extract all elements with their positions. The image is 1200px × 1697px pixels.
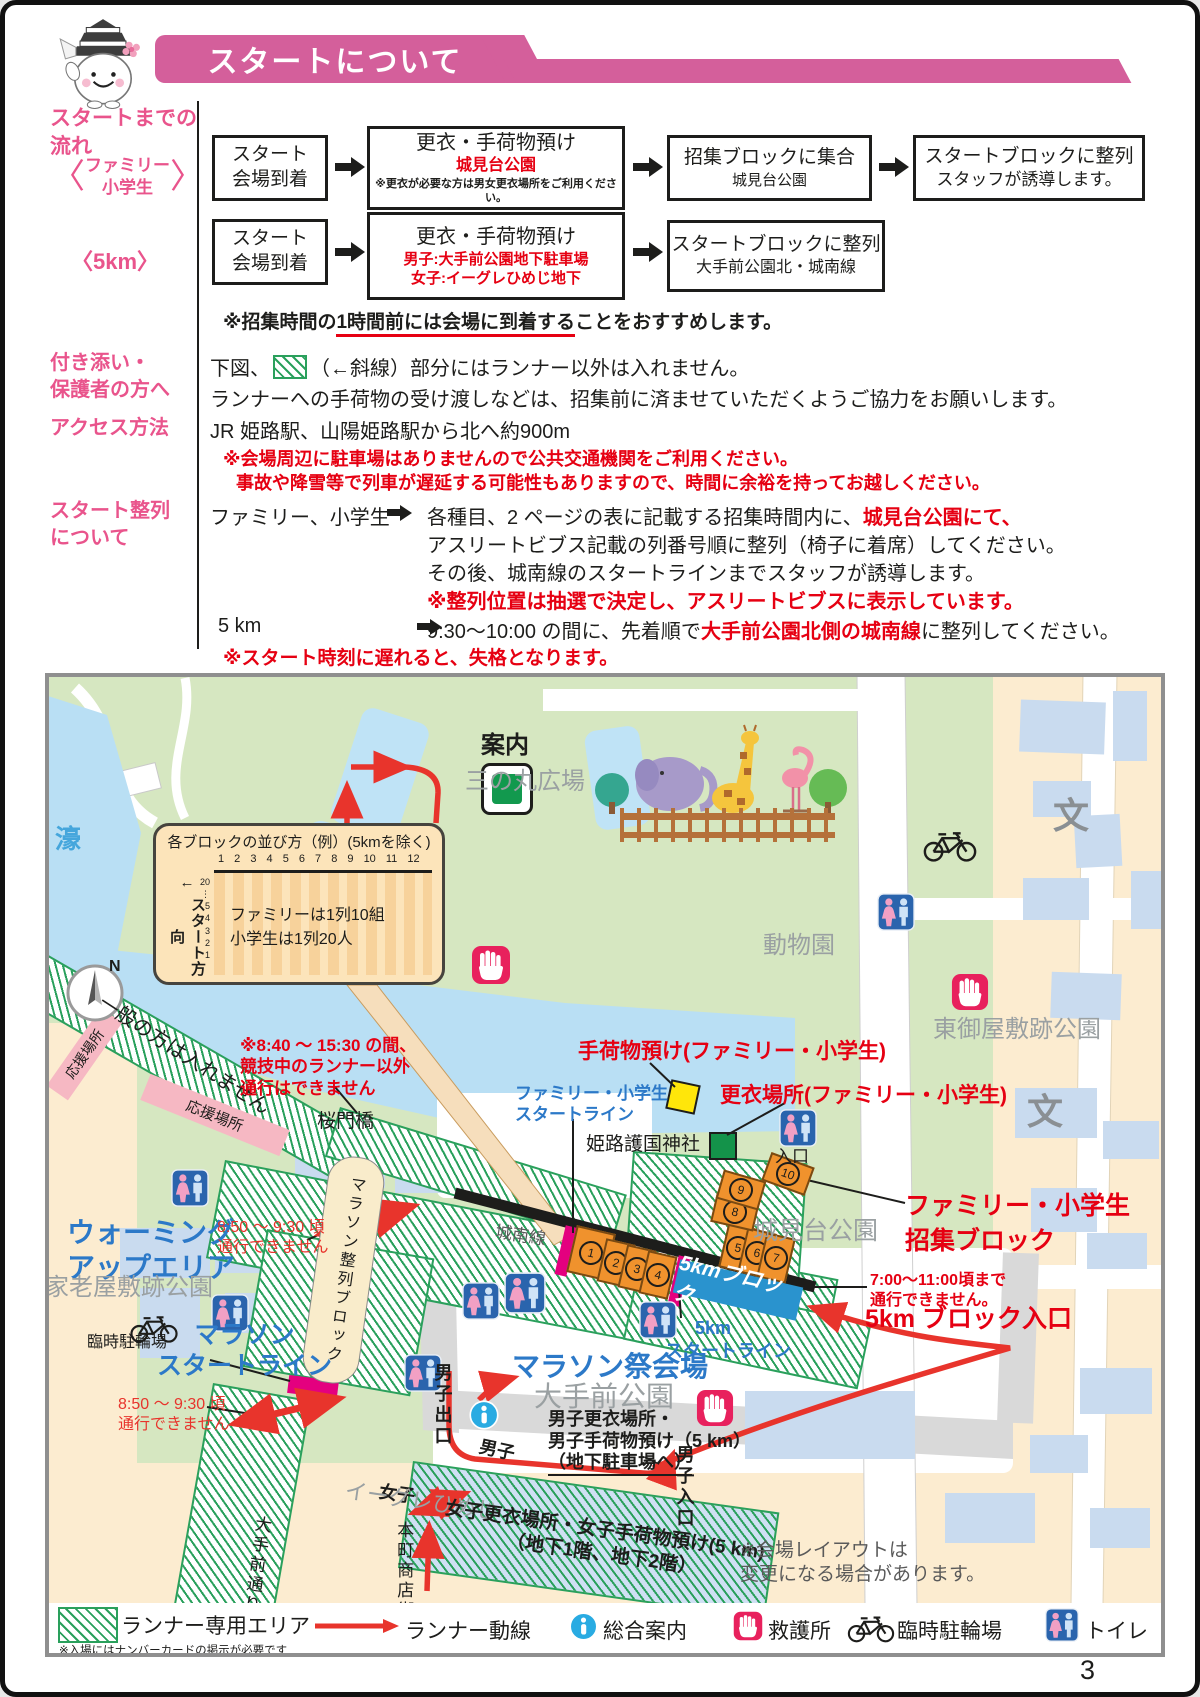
- section-label-attend: 付き添い・保護者の方へ: [50, 350, 170, 404]
- flow1-baggage-box: 更衣・手荷物預け 城見台公園 ※更衣が必要な方は男女更衣場所をご利用ください。: [367, 126, 625, 210]
- event-guide-page: スタートについて スタートまでの流れ 〈 ファミリー 小学生 〉 〈5km〉 付…: [0, 0, 1200, 1697]
- legend-hatch-swatch: [58, 1607, 118, 1643]
- north-label: N: [109, 957, 121, 977]
- assembly-block-label: ファミリー・小学生招集ブロック: [905, 1189, 1130, 1259]
- shiromidai-park-label: 城見台公園: [753, 1216, 878, 1247]
- higashi-park-label: 東御屋敷跡公園: [933, 1015, 1101, 1045]
- flow1-assembly-box: 招集ブロックに集合 城見台公園: [667, 135, 872, 201]
- toilet-icon: [1045, 1608, 1079, 1642]
- legend-runner-flow: ランナー動線: [405, 1615, 531, 1645]
- lineup-arrow-icon: [387, 505, 413, 521]
- section-label-lineup: スタート整列について: [50, 498, 170, 552]
- access-warning1: ※会場周辺に駐車場はありませんので公共交通機関をご利用ください。: [223, 445, 798, 471]
- section-label-access: アクセス方法: [50, 415, 169, 442]
- attend-line1: 下図、（←斜線）部分にはランナー以外は入れません。: [210, 352, 749, 381]
- legend-aid: 救護所: [768, 1615, 831, 1645]
- attend-line2: ランナーへの手荷物の受け渡しなどは、招集前に済ませていただくようご協力をお願いし…: [210, 383, 1067, 412]
- baggage-label: 手荷物預け(ファミリー・小学生): [578, 1039, 886, 1065]
- toilet-icon: [877, 893, 915, 931]
- family-tag: 〈 ファミリー 小学生 〉: [51, 155, 204, 199]
- legend-runner-area: ランナー専用エリア: [121, 1610, 310, 1640]
- toilet-icon: [462, 1282, 500, 1320]
- lineup-5km-label: 5 km: [218, 615, 261, 638]
- km5-tag: 〈5km〉: [71, 247, 159, 277]
- toilet-icon: [779, 1109, 817, 1147]
- lineup-f3: その後、城南線のスタートラインまでスタッフが誘導します。: [427, 557, 985, 586]
- lineup-family-label: ファミリー、小学生: [210, 501, 390, 530]
- toilet-icon: [171, 1169, 209, 1207]
- layout-note: ※会場レイアウトは変更になる場合があります。: [740, 1539, 985, 1587]
- legend-info: 総合案内: [603, 1615, 687, 1645]
- inset-row-numbers: 20⋮5 432 1: [196, 876, 210, 961]
- men-changing-label: 男子更衣場所・男子手荷物預け（5 km） （地下駐車場へ）: [548, 1409, 751, 1476]
- castle-mascot: [55, 17, 151, 109]
- venue-map: 応援場所 応援場所 マラソン整列ブロック: [45, 673, 1165, 1657]
- first-aid-icon: [951, 973, 989, 1011]
- flow-arrow-icon: [335, 242, 365, 262]
- family-startline-label: ファミリー・小学生スタートライン: [515, 1083, 668, 1126]
- flow2-arrive-box: スタート会場到着: [212, 219, 328, 285]
- section-label-flow: スタートまでの流れ: [50, 105, 197, 162]
- arrival-note: ※招集時間の1時間前には会場に到着することをおすすめします。: [223, 307, 782, 334]
- marathon-startline-label: マラソンスタートライン: [157, 1320, 332, 1383]
- zoo-label: 動物園: [763, 931, 835, 961]
- karou-park-label: 家老屋敷跡公園: [45, 1273, 213, 1303]
- lineup-f4: ※整列位置は抽選で決定し、アスリートビブスに表示しています。: [427, 585, 1024, 614]
- no-pass-850: 8:50 〜 9:30 頃通行できません: [217, 1218, 329, 1258]
- changing-label: 更衣場所(ファミリー・小学生): [720, 1083, 1007, 1109]
- sannomaru-label: 三の丸広場: [465, 767, 585, 797]
- access-line1: JR 姫路駅、山陽姫路駅から北へ約900m: [210, 415, 570, 444]
- school-icon: 文: [1027, 1089, 1063, 1134]
- block-lineup-inset: 各ブロックの並び方（例）(5kmを除く) 1 2 3 4 5 6 7 8 9 1…: [153, 823, 445, 985]
- legend-flow-arrow-icon: [313, 1617, 401, 1635]
- flow-arrow-icon: [335, 157, 365, 177]
- legend-bike: 臨時駐輪場: [897, 1615, 1002, 1645]
- legend-toilet: トイレ: [1085, 1615, 1148, 1645]
- men-exit-label: 男子出口: [431, 1363, 454, 1447]
- lineup-f1: 各種目、2 ページの表に記載する招集時間内に、城見台公園にて、: [427, 501, 1022, 530]
- school-icon: 文: [1053, 793, 1089, 838]
- flow2-startblock-box: スタートブロックに整列 大手前公園北・城南線: [667, 220, 885, 292]
- bike-icon: [845, 1609, 897, 1643]
- page-title-banner: スタートについて: [155, 35, 515, 83]
- flow2-baggage-box: 更衣・手荷物預け 男子:大手前公園地下駐車場 女子:イーグレひめじ地下: [367, 212, 625, 300]
- toilet-icon: [504, 1272, 546, 1314]
- first-aid-icon: [733, 1611, 763, 1641]
- annai-label: 案内: [481, 731, 529, 761]
- flow-arrow-icon: [633, 157, 663, 177]
- no-pass-850: 8:50 〜 9:30 頃通行できません: [118, 1395, 230, 1435]
- flow1-startblock-box: スタートブロックに整列 スタッフが誘導します。: [913, 135, 1145, 201]
- km5-entrance-label: 5km ブロック入口: [865, 1304, 1072, 1335]
- notice-840: ※8:40 〜 15:30 の間、競技中のランナー以外通行はできません: [240, 1035, 416, 1099]
- info-icon: [569, 1612, 598, 1641]
- gokoku-shrine-label: 姫路護国神社: [586, 1133, 700, 1157]
- map-legend: ランナー専用エリア ※入場にはナンバーカードの掲示が必要です ランナー動線 総合…: [45, 1603, 1165, 1657]
- flow1-arrive-box: スタート会場到着: [212, 135, 328, 201]
- first-aid-icon: [471, 945, 511, 985]
- sakuramon-label: 桜門橋: [317, 1110, 374, 1134]
- bike-icon: [921, 823, 979, 863]
- lineup-k2: ※スタート時刻に遅れると、失格となります。: [223, 643, 618, 670]
- hatch-swatch-icon: [273, 355, 307, 379]
- legend-runner-area-note: ※入場にはナンバーカードの掲示が必要です: [59, 1642, 287, 1657]
- bike-parking-label: 臨時駐輪場: [87, 1333, 167, 1353]
- entrance-label: 入口: [775, 1146, 809, 1167]
- page-title: スタートについて: [207, 37, 462, 81]
- info-icon: [469, 1400, 499, 1430]
- banner-ribbon: [504, 59, 1132, 83]
- flow-arrow-icon: [879, 157, 909, 177]
- lineup-f2: アスリートビブス記載の列番号順に整列（椅子に着席）してください。: [427, 529, 1066, 558]
- flow-arrow-icon: [633, 242, 663, 262]
- lineup-k1: 9:30〜10:00 の間に、先着順で大手前公園北側の城南線に整列してください。: [427, 615, 1120, 644]
- page-number: 3: [1080, 1655, 1095, 1686]
- moat-label: 濠: [55, 823, 81, 856]
- access-warning2: 事故や降雪等で列車が遅延する可能性もありますので、時間に余裕を持ってお越しくださ…: [236, 469, 990, 495]
